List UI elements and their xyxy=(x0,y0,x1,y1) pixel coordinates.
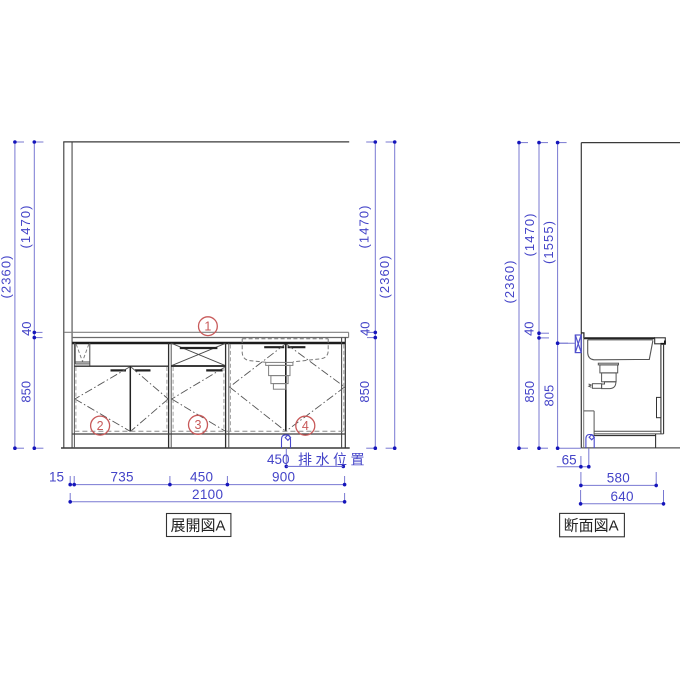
svg-text:(1555): (1555) xyxy=(541,221,556,264)
svg-text:3: 3 xyxy=(195,418,202,432)
svg-text:(2360): (2360) xyxy=(502,261,517,304)
svg-text:40: 40 xyxy=(522,321,537,335)
svg-text:450: 450 xyxy=(190,470,213,485)
svg-text:850: 850 xyxy=(522,381,537,403)
svg-text:2100: 2100 xyxy=(192,487,223,502)
svg-text:展開図A: 展開図A xyxy=(171,518,226,535)
svg-text:(2360): (2360) xyxy=(0,256,13,299)
svg-text:40: 40 xyxy=(358,321,373,335)
svg-text:1: 1 xyxy=(204,320,211,334)
svg-text:805: 805 xyxy=(542,385,557,407)
svg-text:640: 640 xyxy=(611,489,634,504)
svg-text:65: 65 xyxy=(562,453,577,468)
svg-text:4: 4 xyxy=(302,419,309,433)
svg-text:(1470): (1470) xyxy=(522,214,537,257)
svg-text:(1470): (1470) xyxy=(356,206,371,249)
svg-text:735: 735 xyxy=(111,470,134,485)
svg-text:2: 2 xyxy=(97,419,104,433)
svg-text:(2360): (2360) xyxy=(377,256,392,299)
svg-text:40: 40 xyxy=(19,321,34,335)
svg-text:900: 900 xyxy=(272,470,295,485)
svg-text:850: 850 xyxy=(357,381,372,403)
svg-text:850: 850 xyxy=(19,381,34,403)
svg-text:断面図A: 断面図A xyxy=(564,518,619,535)
svg-text:(1470): (1470) xyxy=(18,206,33,249)
svg-text:15: 15 xyxy=(49,470,64,485)
svg-text:580: 580 xyxy=(607,471,630,486)
svg-text:450: 450 xyxy=(267,452,290,467)
